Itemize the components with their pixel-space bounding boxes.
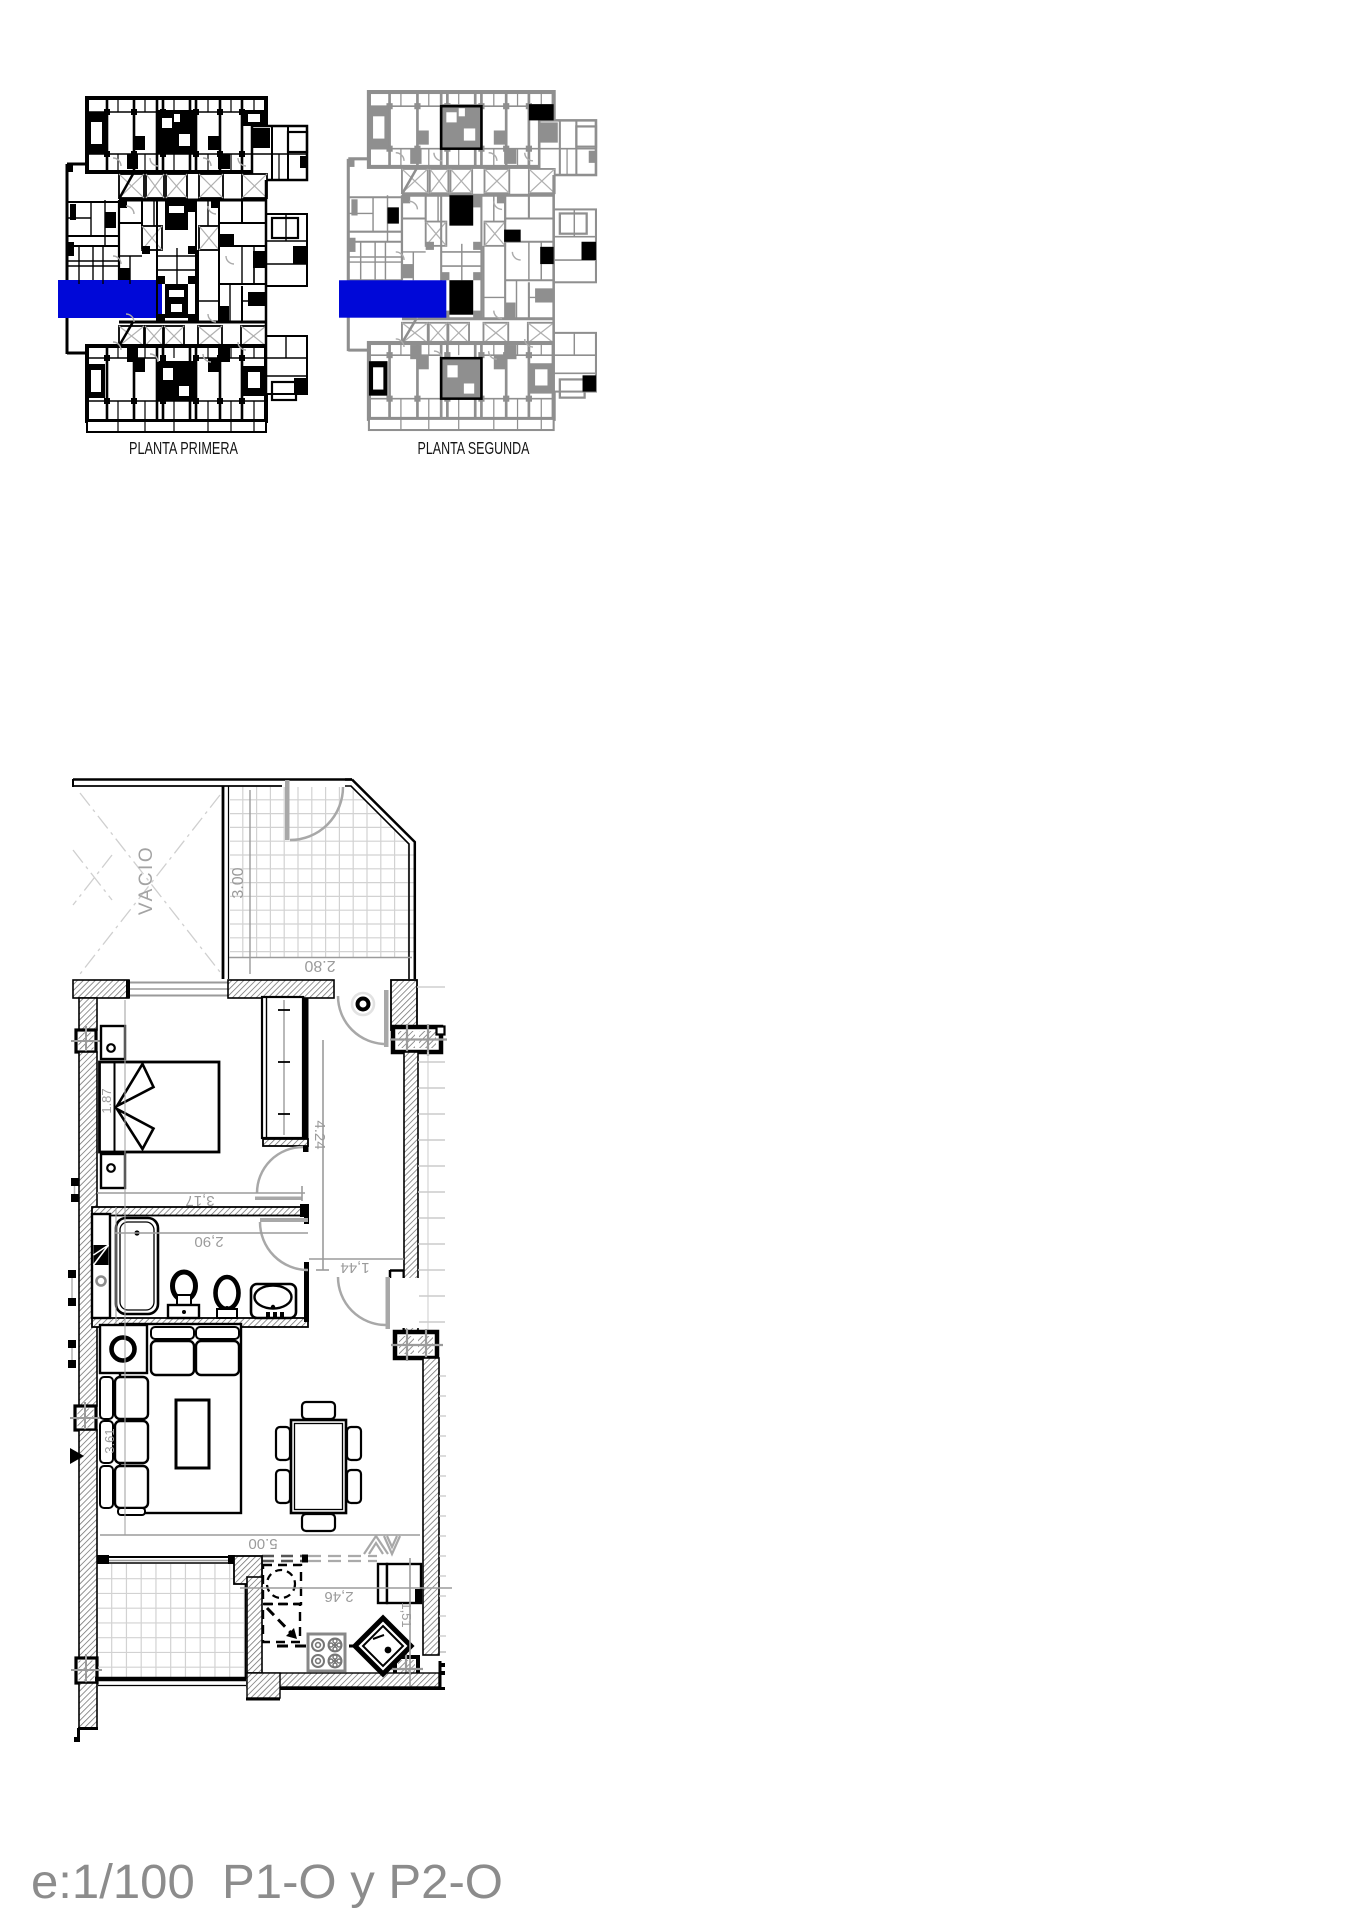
svg-text:PLANTA SEGUNDA: PLANTA SEGUNDA — [418, 438, 530, 458]
svg-text:PLANTA PRIMERA: PLANTA PRIMERA — [129, 438, 238, 458]
svg-text:1,44: 1,44 — [340, 1259, 369, 1276]
svg-text:3.61: 3.61 — [102, 1428, 117, 1453]
svg-text:2.80: 2.80 — [304, 957, 335, 974]
svg-text:VACIO: VACIO — [136, 845, 157, 915]
svg-text:5.00: 5.00 — [248, 1535, 277, 1552]
svg-text:2,46: 2,46 — [324, 1588, 353, 1605]
svg-text:1,51: 1,51 — [399, 1602, 414, 1627]
svg-text:1.87: 1.87 — [99, 1088, 114, 1113]
svg-text:4.24: 4.24 — [311, 1120, 328, 1149]
svg-text:e:1/100 P1-O y P2-O: e:1/100 P1-O y P2-O — [31, 1856, 503, 1909]
svg-text:2,90: 2,90 — [194, 1233, 223, 1250]
svg-text:3.00: 3.00 — [230, 867, 247, 898]
